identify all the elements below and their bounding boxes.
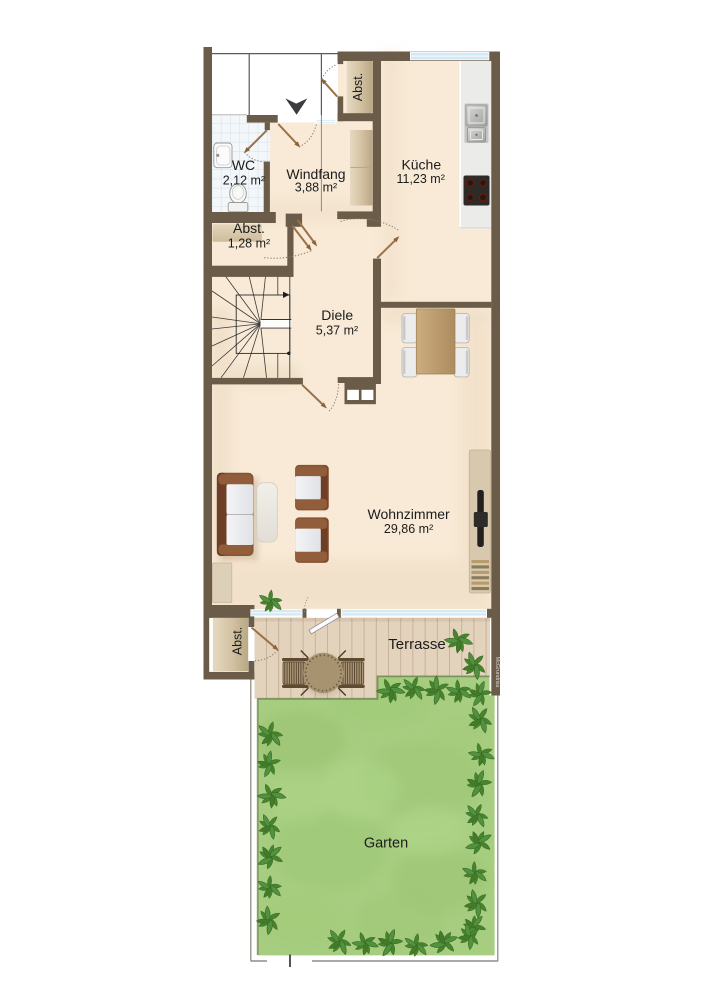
svg-text:5,37 m²: 5,37 m² [316, 324, 358, 338]
svg-text:WC: WC [232, 157, 255, 173]
svg-text:29,86 m²: 29,86 m² [384, 522, 433, 536]
svg-text:Abst.: Abst. [233, 220, 265, 236]
svg-text:Garten: Garten [364, 836, 408, 852]
svg-text:Terrasse: Terrasse [388, 636, 446, 653]
svg-text:Abst.: Abst. [231, 627, 245, 656]
svg-text:1,28 m²: 1,28 m² [228, 236, 270, 250]
svg-text:Wohnzimmer: Wohnzimmer [367, 506, 450, 522]
svg-text:Abst.: Abst. [351, 73, 365, 102]
svg-text:Küche: Küche [401, 157, 441, 173]
svg-text:3,88 m²: 3,88 m² [295, 180, 337, 194]
svg-text:McGrundriss: McGrundriss [494, 657, 500, 688]
svg-text:Diele: Diele [321, 307, 353, 323]
svg-text:2,12 m²: 2,12 m² [223, 174, 265, 188]
svg-text:11,23 m²: 11,23 m² [396, 172, 444, 186]
